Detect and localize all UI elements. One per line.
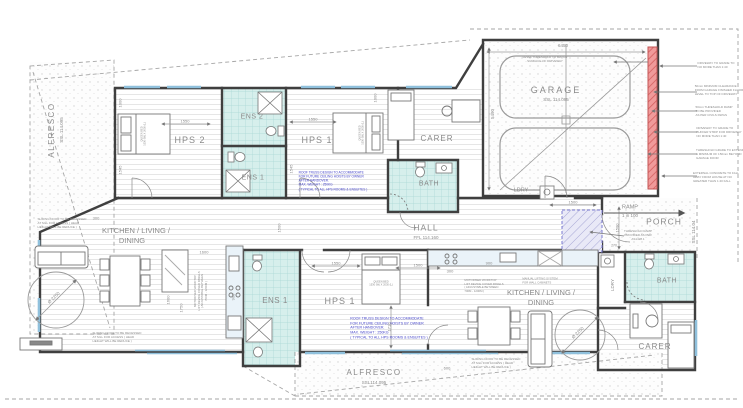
dining-left	[100, 256, 150, 306]
kitchen-right	[428, 250, 598, 266]
plan-drawing	[0, 0, 743, 408]
threshold-ramp-square	[562, 210, 602, 252]
garage-door-red	[648, 47, 657, 189]
floor-plan: ALFRESCOSSL 114.095HPS 2ENS 2ENS 1HPS 1C…	[0, 0, 743, 408]
